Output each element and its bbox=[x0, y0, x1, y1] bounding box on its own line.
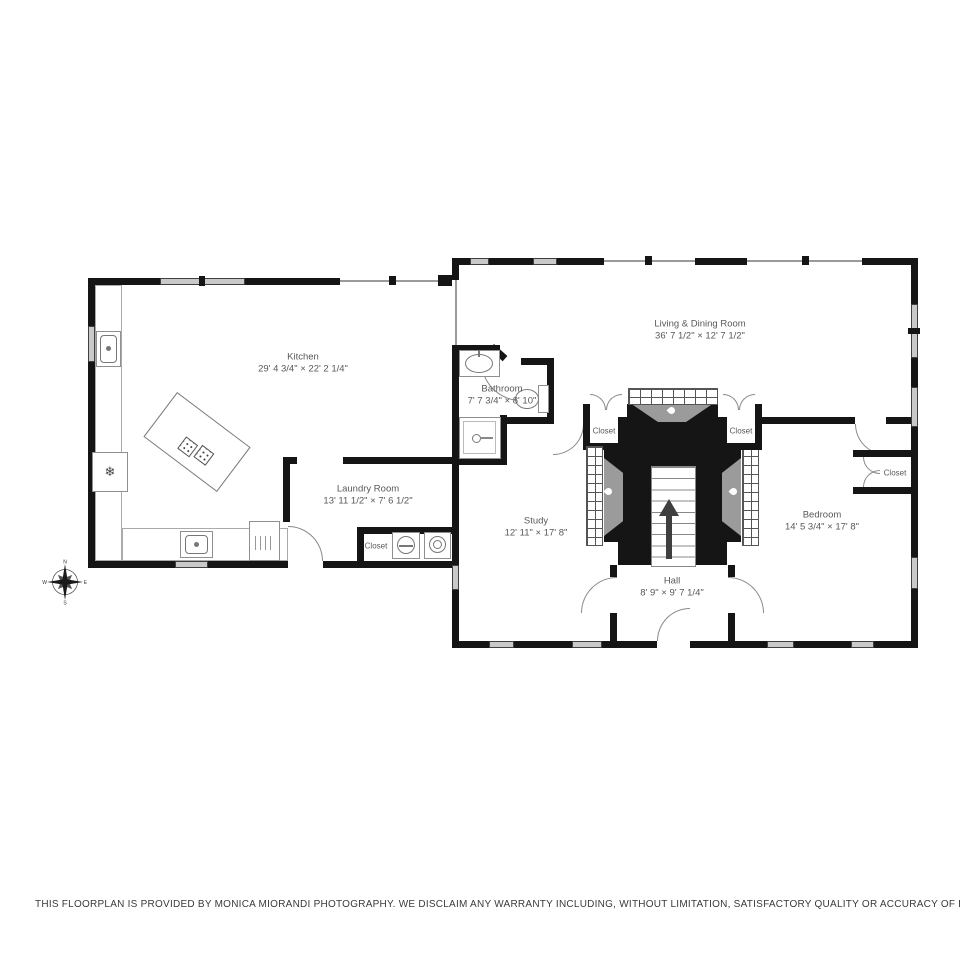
range-vents bbox=[255, 536, 274, 550]
closet-door-right-leaf bbox=[606, 394, 622, 410]
window-mullion bbox=[199, 276, 205, 286]
door-arc-laundry-entry bbox=[288, 526, 323, 561]
wall-segment bbox=[862, 258, 918, 265]
room-label-living-dining: Living & Dining Room 36' 7 1/2" × 12' 7 … bbox=[654, 319, 745, 344]
closet-label-chimney-right: Closet bbox=[730, 427, 753, 436]
wall-segment bbox=[557, 258, 604, 265]
window bbox=[767, 641, 794, 648]
wall-segment bbox=[88, 278, 160, 285]
room-dims: 8' 9" × 9' 7 1/4" bbox=[640, 588, 703, 600]
compass-rose-icon: N E S W bbox=[42, 559, 88, 605]
wall-segment bbox=[720, 443, 762, 450]
window bbox=[572, 641, 602, 648]
wall-segment bbox=[343, 457, 458, 464]
room-name: Laundry Room bbox=[323, 484, 412, 496]
window bbox=[175, 561, 208, 568]
toilet-tank bbox=[538, 385, 549, 413]
open-wall-line bbox=[455, 280, 457, 345]
room-dims: 7' 7 3/4" × 8' 10" bbox=[468, 396, 537, 408]
room-name: Bedroom bbox=[785, 510, 859, 522]
wall-segment bbox=[88, 561, 175, 568]
compass-east-label: E bbox=[84, 580, 88, 586]
stair-direction-arrowhead bbox=[659, 499, 679, 516]
door-arc-front-entry bbox=[657, 608, 690, 641]
closet-door-left-leaf bbox=[723, 394, 739, 410]
room-dims: 13' 11 1/2" × 7' 6 1/2" bbox=[323, 496, 412, 508]
wall-segment bbox=[452, 590, 459, 648]
staircase bbox=[651, 466, 696, 567]
washer-icon bbox=[392, 532, 420, 559]
wall-segment bbox=[507, 417, 553, 424]
faucet-icon bbox=[478, 350, 480, 357]
closet-label-bedroom: Closet bbox=[884, 469, 907, 478]
wall-segment bbox=[794, 641, 851, 648]
compass-south-label: S bbox=[63, 601, 67, 605]
room-label-laundry: Laundry Room 13' 11 1/2" × 7' 6 1/2" bbox=[323, 484, 412, 509]
closet-label-chimney-left: Closet bbox=[593, 427, 616, 436]
wall-segment bbox=[452, 345, 459, 565]
wall-segment bbox=[911, 589, 918, 648]
wall-post bbox=[645, 256, 652, 265]
floorplan-canvas: Closet Closet bbox=[0, 0, 960, 960]
room-label-bathroom: Bathroom 7' 7 3/4" × 8' 10" bbox=[468, 384, 537, 409]
room-name: Hall bbox=[640, 576, 703, 588]
kitchen-counter-left bbox=[95, 285, 122, 561]
closet-door-lower-leaf bbox=[863, 470, 880, 487]
wall-segment bbox=[728, 613, 735, 648]
wall-segment bbox=[610, 613, 617, 648]
wall-segment bbox=[874, 641, 918, 648]
room-dims: 36' 7 1/2" × 12' 7 1/2" bbox=[654, 331, 745, 343]
wall-segment bbox=[514, 641, 572, 648]
wall-segment bbox=[489, 258, 533, 265]
faucet-icon bbox=[106, 346, 111, 351]
window bbox=[911, 387, 918, 427]
window bbox=[489, 641, 514, 648]
closet-label-laundry: Closet bbox=[365, 542, 388, 551]
room-name: Kitchen bbox=[258, 352, 348, 364]
closet-door-left-leaf bbox=[590, 394, 606, 410]
room-name: Living & Dining Room bbox=[654, 319, 745, 331]
closet-door-right-leaf bbox=[739, 394, 755, 410]
room-dims: 14' 5 3/4" × 17' 8" bbox=[785, 522, 859, 534]
window bbox=[911, 557, 918, 589]
washer-chord bbox=[399, 545, 413, 547]
wall-segment bbox=[695, 258, 747, 265]
wall-segment bbox=[911, 358, 918, 387]
kitchen-island bbox=[143, 392, 250, 492]
wall-segment bbox=[853, 450, 911, 457]
wall-post bbox=[389, 276, 396, 285]
room-name: Bathroom bbox=[468, 384, 537, 396]
window bbox=[470, 258, 489, 265]
wall-post bbox=[802, 256, 809, 265]
wall-segment bbox=[357, 527, 364, 568]
wall-segment bbox=[452, 458, 507, 465]
wall-segment bbox=[886, 417, 911, 424]
faucet-icon bbox=[194, 542, 199, 547]
shower-handle bbox=[480, 437, 493, 439]
room-label-study: Study 12' 11" × 17' 8" bbox=[505, 516, 568, 541]
wall-segment bbox=[911, 427, 918, 557]
wall-post bbox=[438, 275, 452, 286]
window bbox=[452, 565, 459, 590]
wall-segment bbox=[762, 417, 855, 424]
room-label-kitchen: Kitchen 29' 4 3/4" × 22' 2 1/4" bbox=[258, 352, 348, 377]
window bbox=[533, 258, 557, 265]
wall-segment bbox=[88, 278, 95, 326]
door-arc-hall-bedroom bbox=[728, 577, 764, 613]
room-label-hall: Hall 8' 9" × 9' 7 1/4" bbox=[640, 576, 703, 601]
disclaimer-text: THIS FLOORPLAN IS PROVIDED BY MONICA MIO… bbox=[35, 899, 960, 910]
fireplace-hearth-west bbox=[586, 446, 603, 546]
window bbox=[88, 326, 95, 362]
wall-segment bbox=[610, 565, 617, 577]
wall-segment bbox=[728, 565, 735, 577]
wall-segment bbox=[323, 561, 458, 568]
room-dims: 12' 11" × 17' 8" bbox=[505, 528, 568, 540]
door-arc-hall-study bbox=[581, 577, 617, 613]
open-wall-line bbox=[340, 280, 452, 282]
compass-north-label: N bbox=[63, 560, 67, 566]
wall-segment bbox=[245, 278, 340, 285]
window-mullion bbox=[908, 328, 920, 334]
wall-segment bbox=[911, 258, 918, 304]
window bbox=[851, 641, 874, 648]
stair-direction-arrow bbox=[666, 514, 672, 559]
room-label-bedroom: Bedroom 14' 5 3/4" × 17' 8" bbox=[785, 510, 859, 535]
fireplace-hearth-north bbox=[628, 388, 718, 405]
compass-west-label: W bbox=[42, 580, 47, 586]
fireplace-hearth-east bbox=[742, 446, 759, 546]
cooktop-burners-right bbox=[193, 445, 214, 466]
wall-segment bbox=[283, 457, 290, 522]
dryer-icon bbox=[424, 532, 451, 559]
dryer-drum-inner bbox=[433, 540, 442, 549]
door-arc-study bbox=[553, 424, 584, 455]
wall-segment bbox=[208, 561, 288, 568]
wall-segment bbox=[452, 258, 459, 280]
room-name: Study bbox=[505, 516, 568, 528]
wall-segment bbox=[853, 487, 911, 494]
room-dims: 29' 4 3/4" × 22' 2 1/4" bbox=[258, 364, 348, 376]
refrigerator-icon: ❄ bbox=[92, 452, 128, 492]
